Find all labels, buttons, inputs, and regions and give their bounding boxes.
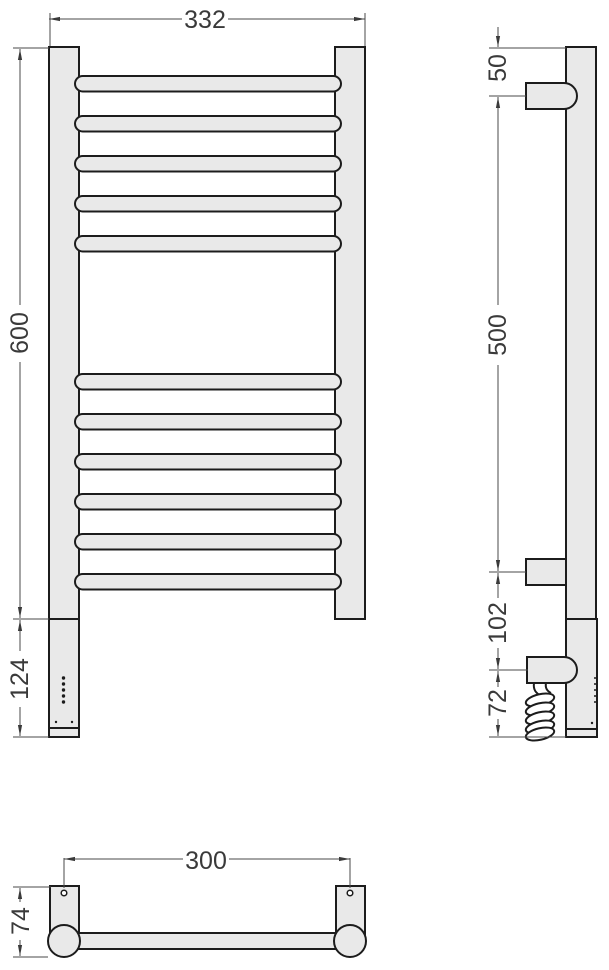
front-rung: [75, 574, 341, 590]
front-rung: [75, 374, 341, 390]
front-rung: [75, 196, 341, 212]
front-control-box: [49, 619, 79, 728]
front-rung: [75, 156, 341, 172]
screw-dot: [71, 721, 73, 723]
dim-side-cable-offset-label: 72: [484, 689, 512, 717]
front-rung: [75, 494, 341, 510]
dim-bottom-mounting-distance-label: 300: [185, 847, 227, 875]
dim-side-bracket-spacing-label: 500: [484, 314, 512, 356]
led-indicator-dot: [62, 676, 65, 679]
front-rung: [75, 236, 341, 252]
bottom-rung-bar: [64, 933, 350, 949]
dimension-side-heater-offset: 102: [484, 573, 528, 670]
side-view: 50 500 102 72: [484, 27, 597, 743]
screw-dot: [591, 722, 593, 724]
side-wall-bracket-top: [526, 83, 577, 109]
side-wall-bracket-middle: [526, 559, 567, 585]
side-electric-bracket: [527, 657, 577, 683]
front-bottom-cap: [49, 728, 79, 737]
dim-bottom-depth-label: 74: [7, 907, 35, 935]
front-view: 332 600 124: [6, 6, 365, 737]
led-indicator-dot: [62, 694, 65, 697]
technical-drawing-svg: 332 600 124: [0, 0, 609, 970]
side-led-dot: [594, 683, 596, 685]
dimension-front-lower-section: 124: [6, 620, 49, 737]
dim-side-top-offset-label: 50: [484, 54, 512, 82]
dim-front-height-label: 600: [6, 312, 34, 354]
screw-dot: [55, 721, 57, 723]
front-right-post: [335, 47, 365, 619]
bottom-view: 300 74: [7, 847, 366, 957]
side-post: [566, 47, 596, 619]
side-bottom-cap: [566, 729, 597, 737]
front-rung: [75, 116, 341, 132]
bottom-post-circle-right: [334, 925, 366, 957]
dimension-front-width: 332: [49, 6, 365, 46]
front-rung: [75, 534, 341, 550]
dimension-bottom-mounting-distance: 300: [64, 847, 350, 888]
dim-front-lower-section-label: 124: [6, 658, 34, 700]
led-indicator-dot: [62, 682, 65, 685]
power-cable-coil: [525, 683, 556, 743]
front-rung: [75, 454, 341, 470]
front-rung: [75, 414, 341, 430]
side-led-dot: [594, 695, 596, 697]
led-indicator-dot: [62, 700, 65, 703]
dim-front-width-label: 332: [184, 6, 226, 34]
mount-screw-hole-left: [61, 890, 67, 896]
dimension-bottom-depth: 74: [7, 887, 51, 957]
side-led-dot: [594, 701, 596, 703]
side-led-dot: [594, 677, 596, 679]
dimension-front-height: 600: [6, 48, 49, 619]
mount-screw-hole-right: [347, 890, 353, 896]
led-indicator-dot: [62, 688, 65, 691]
front-left-post: [49, 47, 79, 619]
front-rung: [75, 76, 341, 92]
dim-side-heater-offset-label: 102: [484, 602, 512, 644]
dimension-side-bracket-spacing: 500: [484, 97, 526, 572]
technical-drawing-page: 332 600 124: [0, 0, 609, 970]
bottom-post-circle-left: [48, 925, 80, 957]
side-led-dot: [594, 689, 596, 691]
